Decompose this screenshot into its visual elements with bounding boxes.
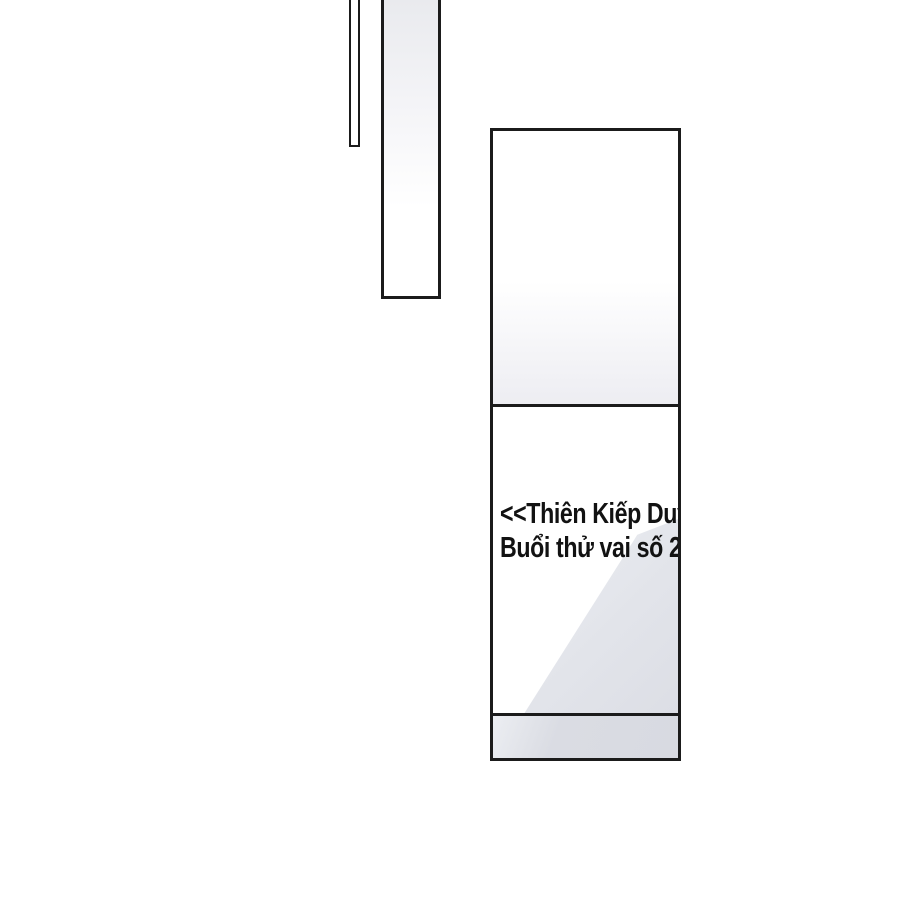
- comic-page: <<Thiên Kiếp Duy Buổi thử vai số 2: [0, 0, 900, 900]
- sign-text: <<Thiên Kiếp Duy Buổi thử vai số 2: [500, 497, 678, 565]
- sign-base-band: [493, 713, 678, 758]
- panel-strip-tall: [381, 0, 441, 299]
- sign-text-line1: <<Thiên Kiếp Duy: [500, 497, 678, 531]
- sign-upper-blank-section: [493, 131, 678, 407]
- sign-lower-section: <<Thiên Kiếp Duy Buổi thử vai số 2: [493, 407, 678, 758]
- sign-text-line2: Buổi thử vai số 2: [500, 531, 678, 565]
- sign-panel: <<Thiên Kiếp Duy Buổi thử vai số 2: [490, 128, 681, 761]
- panel-strip-narrow: [349, 0, 360, 147]
